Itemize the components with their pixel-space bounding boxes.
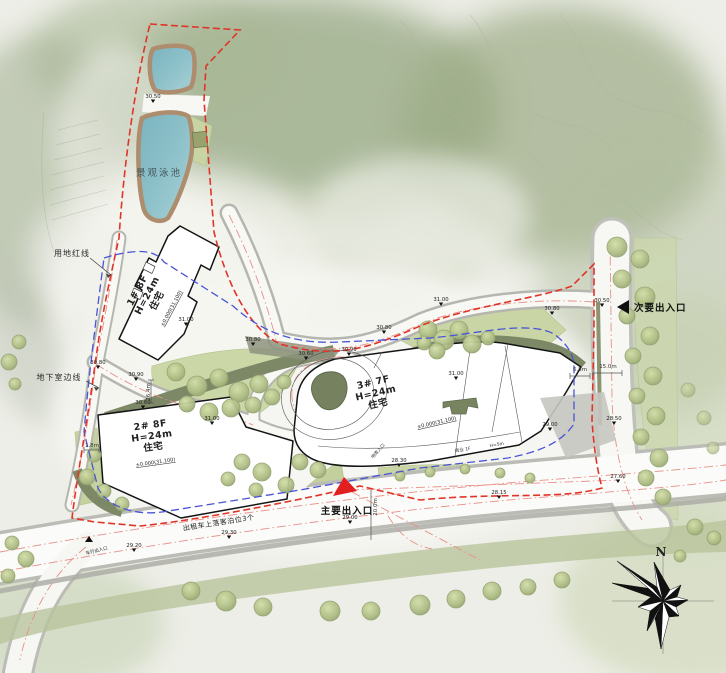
spot-elevation: 31.00 bbox=[448, 371, 464, 377]
site-plan-canvas: 30.50 31.00 30.80 30.60 30.90 30.80 31.0… bbox=[0, 0, 726, 673]
spot-elevation: 28.50 bbox=[606, 416, 622, 422]
spot-elevation: 30.80 bbox=[245, 337, 261, 343]
spot-elevation: 31.00 bbox=[204, 416, 220, 422]
spot-elevation: 30.80 bbox=[544, 306, 560, 312]
secondary-entrance-label: 次要出入口 bbox=[634, 302, 687, 314]
spot-elevation: 28.30 bbox=[391, 458, 407, 464]
spot-elevation: 27.60 bbox=[610, 474, 626, 480]
spot-elevation: 30.50 bbox=[594, 298, 610, 304]
basement-line-label: 地下室边线 bbox=[37, 372, 82, 382]
spot-elevation: 31.00 bbox=[433, 297, 449, 303]
pool-label: 景观泳池 bbox=[136, 167, 182, 179]
dimension-label: 6.8m bbox=[573, 367, 587, 373]
spot-elevation: 30.90 bbox=[128, 372, 144, 378]
spot-elevation: 29.00 bbox=[542, 422, 558, 428]
north-label: N bbox=[656, 545, 667, 559]
spot-elevation: 30.60 bbox=[298, 351, 314, 357]
spot-elevation: 30.80 bbox=[376, 325, 392, 331]
pool-pavilion bbox=[192, 131, 207, 147]
dimension-label: 15.0m bbox=[599, 364, 617, 370]
spot-elevation: 30.80 bbox=[90, 360, 106, 366]
spot-elevation: 29.20 bbox=[126, 543, 142, 549]
dimension-label: 1.8m bbox=[85, 443, 99, 449]
site-plan-drawing: 30.50 31.00 30.80 30.60 30.90 30.80 31.0… bbox=[0, 0, 726, 673]
upper-pool bbox=[150, 46, 195, 93]
dimension-label: 26.4m bbox=[146, 383, 152, 401]
spot-elevation: 30.90 bbox=[341, 347, 357, 353]
main-entrance-label: 主要出入口 bbox=[321, 505, 374, 517]
spot-elevation: 29.30 bbox=[221, 530, 237, 536]
site-boundary-label: 用地红线 bbox=[54, 248, 90, 258]
spot-elevation: 30.50 bbox=[145, 94, 161, 100]
spot-elevation: 31.00 bbox=[178, 317, 194, 323]
spot-elevation: 28.15 bbox=[491, 490, 506, 496]
dimension-label: 20.0m bbox=[373, 498, 379, 516]
